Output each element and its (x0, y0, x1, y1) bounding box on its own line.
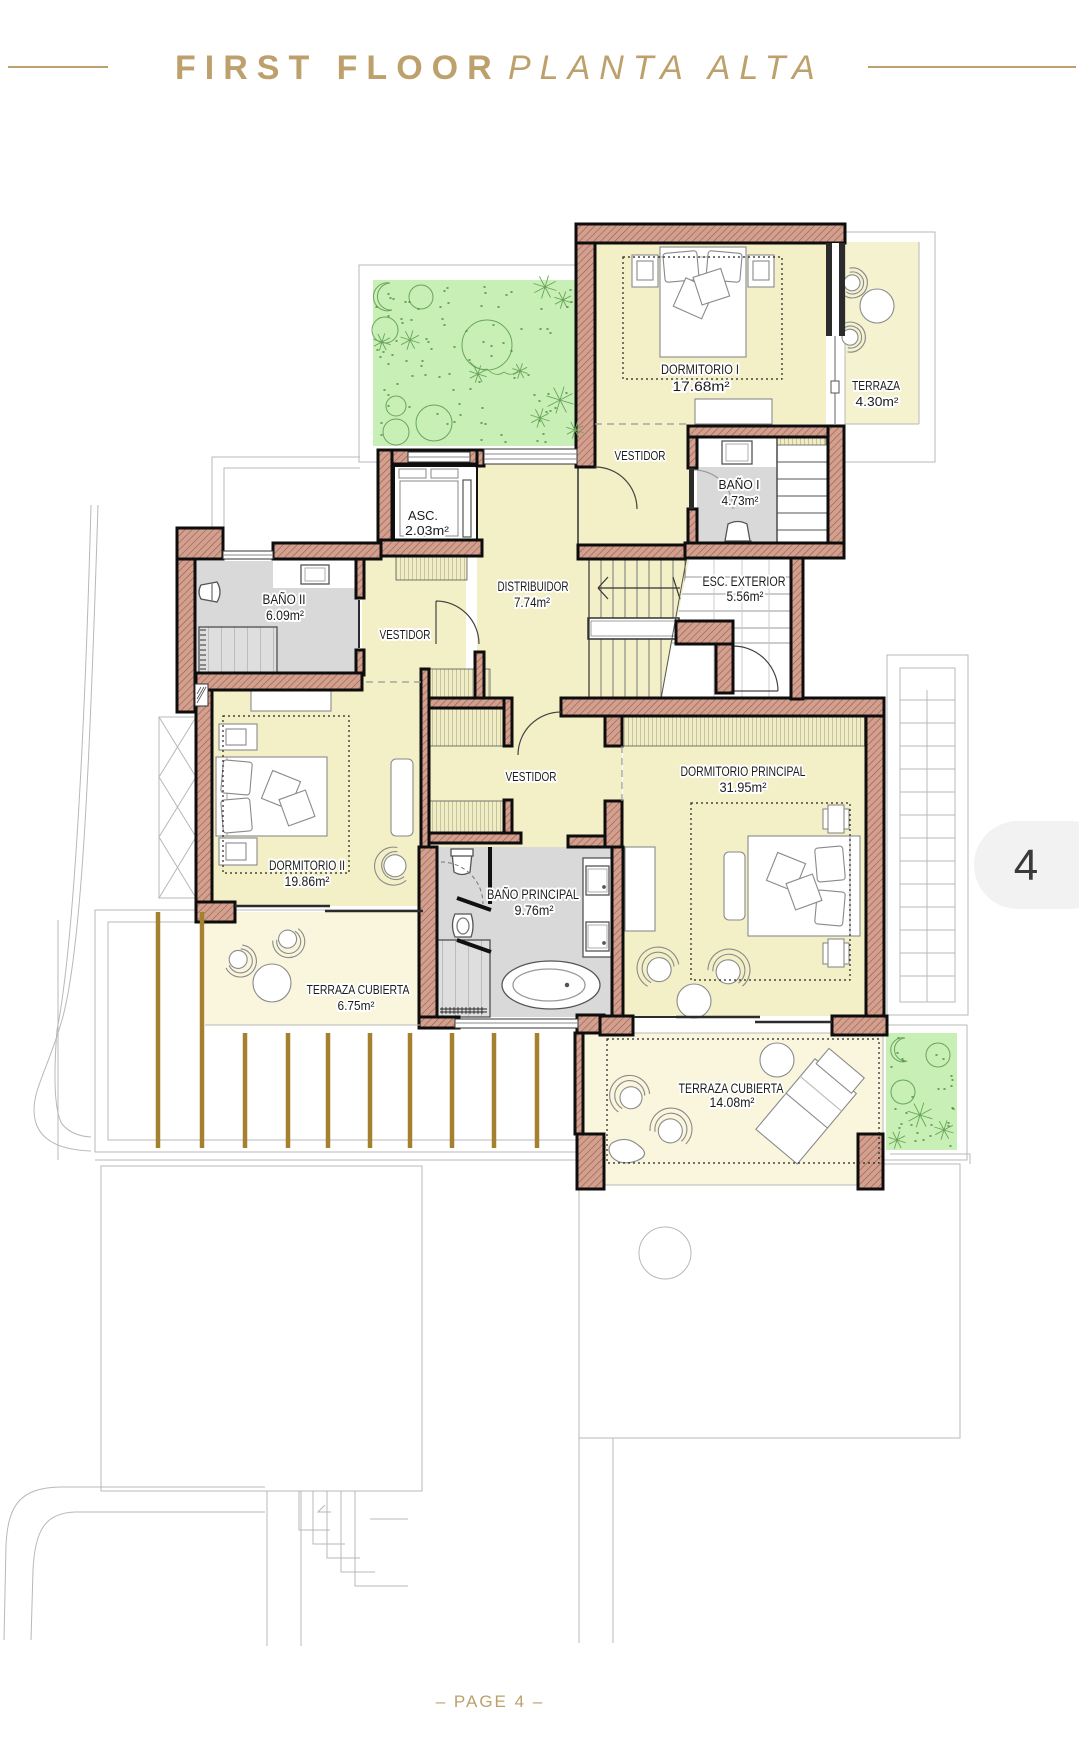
svg-text:BAÑO PRINCIPAL: BAÑO PRINCIPAL (487, 887, 579, 902)
svg-text:ASC.: ASC. (408, 508, 438, 523)
svg-text:VESTIDOR: VESTIDOR (506, 769, 557, 784)
svg-text:PLANTA ALTA: PLANTA ALTA (508, 49, 824, 87)
svg-text:DORMITORIO I: DORMITORIO I (661, 362, 739, 377)
svg-text:6.75m²: 6.75m² (338, 998, 376, 1013)
svg-text:4.73m²: 4.73m² (722, 493, 760, 508)
svg-text:6.09m²: 6.09m² (266, 608, 304, 623)
svg-text:14.08m²: 14.08m² (710, 1095, 755, 1110)
svg-text:19.86m²: 19.86m² (285, 874, 330, 889)
svg-text:– PAGE 4 –: – PAGE 4 – (436, 1692, 545, 1711)
svg-text:4.30m²: 4.30m² (856, 394, 900, 409)
svg-text:VESTIDOR: VESTIDOR (380, 627, 431, 642)
svg-text:BAÑO I: BAÑO I (719, 477, 760, 492)
svg-text:DISTRIBUIDOR: DISTRIBUIDOR (498, 579, 569, 594)
svg-text:9.76m²: 9.76m² (515, 903, 554, 918)
svg-text:BAÑO II: BAÑO II (263, 592, 306, 607)
svg-text:DORMITORIO PRINCIPAL: DORMITORIO PRINCIPAL (681, 764, 806, 779)
svg-text:2.03m²: 2.03m² (405, 523, 450, 538)
svg-text:5.56m²: 5.56m² (727, 589, 764, 604)
svg-text:DORMITORIO II: DORMITORIO II (269, 858, 345, 873)
svg-text:31.95m²: 31.95m² (720, 780, 767, 795)
svg-text:TERRAZA CUBIERTA: TERRAZA CUBIERTA (307, 982, 410, 997)
svg-text:VESTIDOR: VESTIDOR (615, 448, 666, 463)
svg-text:TERRAZA: TERRAZA (852, 378, 900, 393)
svg-text:4: 4 (1014, 841, 1038, 890)
svg-text:17.68m²: 17.68m² (673, 379, 731, 394)
svg-text:TERRAZA CUBIERTA: TERRAZA CUBIERTA (679, 1081, 784, 1096)
svg-text:FIRST FLOOR: FIRST FLOOR (175, 49, 501, 87)
svg-text:7.74m²: 7.74m² (514, 595, 550, 610)
svg-text:ESC. EXTERIOR: ESC. EXTERIOR (703, 574, 786, 589)
